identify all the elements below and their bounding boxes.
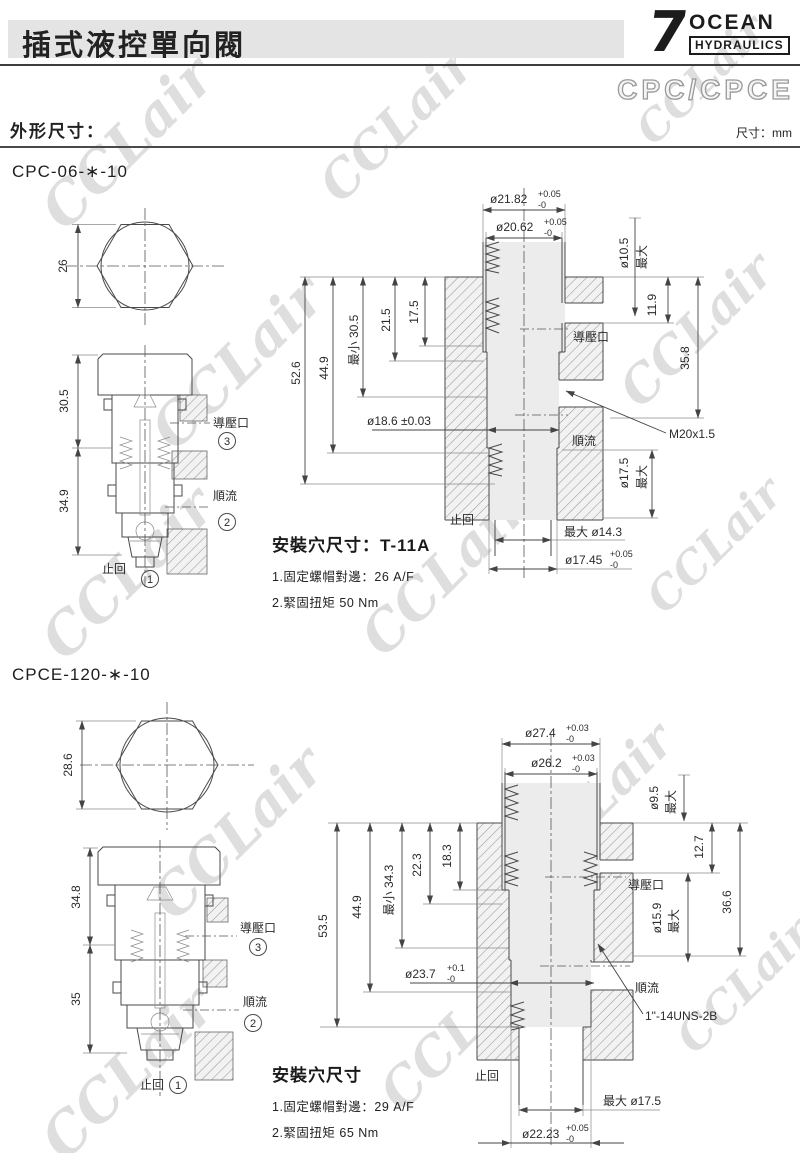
pilot-label: 導壓口 <box>628 878 664 892</box>
dim-label: ø9.5 <box>647 786 661 810</box>
page-title: 插式液控單向閥 <box>22 22 246 64</box>
dim-label: ø17.5 <box>617 457 631 488</box>
dim-label: 最大 ø14.3 <box>564 525 622 539</box>
logo-sub-name: HYDRAULICS <box>689 36 790 55</box>
dim-label: ø10.5 <box>617 237 631 268</box>
flow-port-number: 2 <box>224 517 230 529</box>
dim-label: 44.9 <box>317 356 331 380</box>
check-port-label: 止回 <box>140 1078 164 1092</box>
cpce-section-view: 34.8 35 導壓口 3 順流 2 止回 1 <box>55 840 295 1102</box>
pilot-port-label: 導壓口 <box>213 416 249 430</box>
unit-note: 尺寸：mm <box>736 124 792 141</box>
manifold-hatch <box>195 898 233 1080</box>
brand-logo: 7 OCEAN HYDRAULICS <box>648 4 794 62</box>
check-port-number: 1 <box>147 574 153 586</box>
cpc-install-note2: 2.緊固扭矩 50 Nm <box>272 592 430 611</box>
check-port-label: 止回 <box>102 562 126 576</box>
pilot-port-label: 導壓口 <box>240 921 276 935</box>
dim-label: 17.5 <box>407 300 421 324</box>
logo-brand-name: OCEAN <box>689 12 775 34</box>
outline-dims-label: 外形尺寸： <box>10 117 105 142</box>
section-rule <box>0 146 800 148</box>
top-diameter-dims: ø21.82 +0.05 -0 ø20.62 +0.05 -0 <box>483 189 567 242</box>
flow-port-label: 順流 <box>243 995 267 1009</box>
check-port-number: 1 <box>175 1080 181 1092</box>
dim-label: 28.6 <box>61 753 75 777</box>
datasheet-page: CCLair CCLair CCLair CCLair CCLair CCLai… <box>0 0 800 1153</box>
dim-label: 最大 ø17.5 <box>603 1094 661 1108</box>
thread-label: M20x1.5 <box>669 427 715 441</box>
manifold-hatch <box>167 395 207 574</box>
cpc-hex-view: 26 <box>50 208 230 338</box>
dim-tolerance: -0 <box>610 560 618 570</box>
dim-tolerance: +0.05 <box>538 189 561 199</box>
cpc-install-title: 安裝穴尺寸：T-11A <box>272 531 430 556</box>
flow-label: 順流 <box>572 434 596 448</box>
dim-label: 30.5 <box>57 389 71 413</box>
bottom-dims: 最大 ø14.3 ø17.45 +0.05 -0 <box>489 520 633 574</box>
cpce-install-note1: 1.固定螺帽對邊：29 A/F <box>272 1096 414 1115</box>
check-label: 止回 <box>475 1069 499 1083</box>
cpc-model-title: CPC-06-∗-10 <box>12 162 128 182</box>
dim-label: 52.6 <box>289 361 303 385</box>
flow-port-label: 順流 <box>213 489 237 503</box>
dim-tolerance: -0 <box>538 200 546 210</box>
cpce-install-note2: 2.緊固扭矩 65 Nm <box>272 1122 414 1141</box>
dim-tolerance: -0 <box>447 974 455 984</box>
dim-tolerance: +0.05 <box>566 1123 589 1133</box>
dim-tolerance: +0.03 <box>572 753 595 763</box>
dim-label: 12.7 <box>692 835 706 859</box>
cpc-install-notes: 安裝穴尺寸：T-11A 1.固定螺帽對邊：26 A/F 2.緊固扭矩 50 Nm <box>272 531 430 618</box>
bore-dia-label: ø18.6 ±0.03 <box>367 414 431 428</box>
dim-tolerance: -0 <box>566 734 574 744</box>
cpc-cavity-drawing: ø21.82 +0.05 -0 ø20.62 +0.05 -0 52.6 44.… <box>280 178 800 583</box>
pilot-label: 導壓口 <box>573 330 609 344</box>
bore-dia-label: ø23.7 <box>405 967 436 981</box>
dim-label: 11.9 <box>645 293 659 316</box>
dim-label: ø26.2 <box>531 756 562 770</box>
cpc-section-view: 30.5 34.9 導壓口 3 順流 2 止回 1 <box>50 345 280 593</box>
logo-numeral: 7 <box>644 5 691 61</box>
series-code: CPC/CPCE <box>617 74 794 106</box>
pilot-port-number: 3 <box>224 436 230 448</box>
dim-label: ø20.62 <box>496 220 534 234</box>
dim-label: 最大 <box>664 790 678 814</box>
cpce-install-title: 安裝穴尺寸 <box>272 1061 414 1086</box>
dim-label: 18.3 <box>440 844 454 868</box>
cpc-install-note1: 1.固定螺帽對邊：26 A/F <box>272 566 430 585</box>
dim-tolerance: -0 <box>572 764 580 774</box>
thread-label: 1"-14UNS-2B <box>645 1009 717 1023</box>
dim-label: 21.5 <box>379 308 393 332</box>
dim-label: 36.6 <box>720 890 734 914</box>
dim-label: ø27.4 <box>525 726 556 740</box>
dim-label: ø22.23 <box>522 1127 560 1141</box>
dim-label: 22.3 <box>410 853 424 877</box>
dim-tolerance: +0.05 <box>610 549 633 559</box>
dim-label: 最小 30.5 <box>347 314 361 365</box>
dim-label: 最大 <box>635 245 649 269</box>
dim-tolerance: +0.03 <box>566 723 589 733</box>
check-label: 止回 <box>450 513 474 527</box>
cpce-model-title: CPCE-120-∗-10 <box>12 665 151 685</box>
dim-label: ø15.9 <box>650 902 664 933</box>
dim-label: 35.8 <box>678 346 692 370</box>
dim-label: 53.5 <box>316 914 330 938</box>
dim-tolerance: -0 <box>566 1134 574 1144</box>
dim-label: ø21.82 <box>490 192 528 206</box>
dim-label: 26 <box>56 259 70 273</box>
right-dims: ø9.5 最大 12.7 ø15.9 最大 36.6 <box>633 775 748 962</box>
dim-label: 最大 <box>667 909 681 933</box>
dim-label: 34.9 <box>57 489 71 513</box>
dim-tolerance: +0.05 <box>544 217 567 227</box>
dim-tolerance: +0.1 <box>447 963 465 973</box>
header-rule <box>0 64 800 66</box>
dim-label: 35 <box>69 992 83 1006</box>
dim-label: 最大 <box>635 465 649 489</box>
dim-label: 34.8 <box>69 885 83 909</box>
top-diameter-dims: ø27.4 +0.03 -0 ø26.2 +0.03 -0 <box>502 723 600 783</box>
flow-port-number: 2 <box>250 1018 256 1030</box>
cpce-hex-view: 28.6 <box>60 700 260 840</box>
dim-label: 最小 34.3 <box>382 864 396 915</box>
cpce-install-notes: 安裝穴尺寸 1.固定螺帽對邊：29 A/F 2.緊固扭矩 65 Nm <box>272 1061 414 1148</box>
dim-tolerance: -0 <box>544 228 552 238</box>
dim-label: ø17.45 <box>565 553 603 567</box>
hex-outline <box>65 208 225 328</box>
flow-label: 順流 <box>635 981 659 995</box>
pilot-port-number: 3 <box>255 942 261 954</box>
dim-label: 44.9 <box>350 895 364 919</box>
